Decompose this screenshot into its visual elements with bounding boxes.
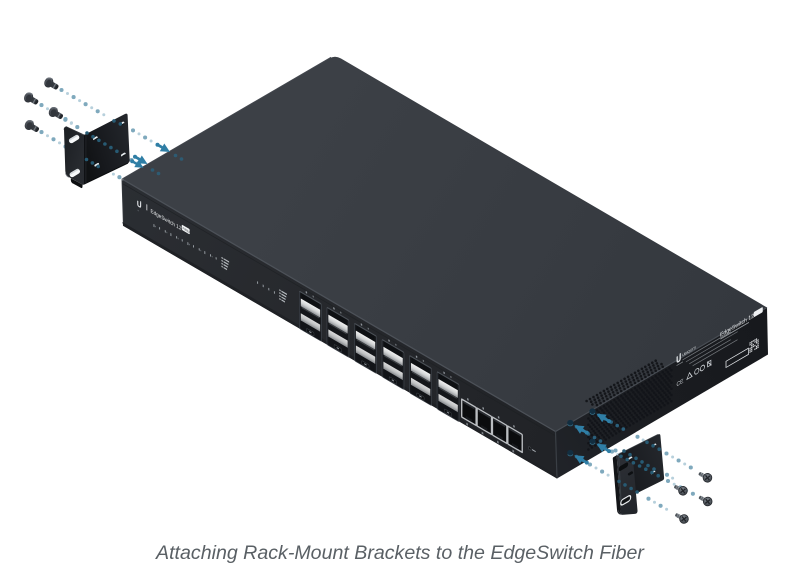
svg-text:Attaching Rack-Mount Brackets: Attaching Rack-Mount Brackets to the Edg…: [155, 542, 645, 564]
